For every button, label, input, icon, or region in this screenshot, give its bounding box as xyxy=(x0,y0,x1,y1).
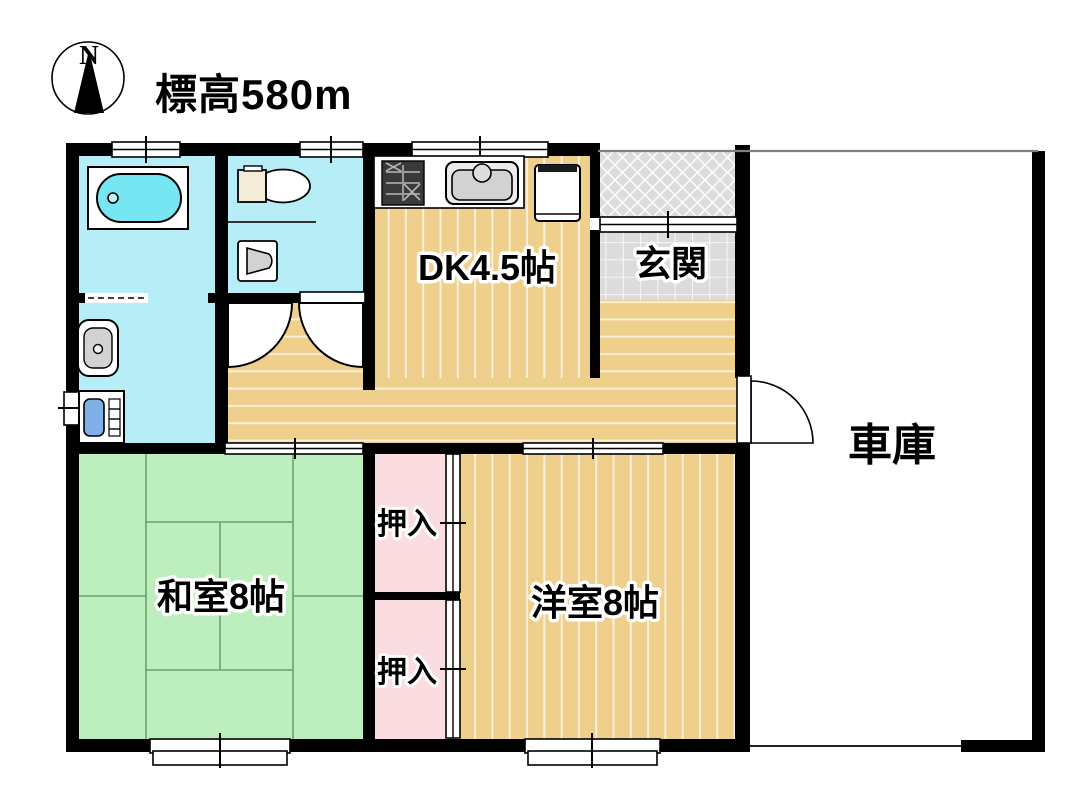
closet-upper-label: 押入 xyxy=(377,508,437,541)
genkan-label: 玄関 xyxy=(635,243,707,284)
garage-label: 車庫 xyxy=(848,421,936,470)
bath-folding-door xyxy=(85,293,148,303)
washitsu-label: 和室8帖 xyxy=(157,576,285,617)
elevation-label: 標高580m xyxy=(155,71,352,118)
kitchen-sink-icon xyxy=(446,162,518,204)
closet-lower-label: 押入 xyxy=(377,656,437,689)
hall-band-stripes xyxy=(228,378,737,448)
washing-machine-icon xyxy=(79,391,124,443)
porch-hatch xyxy=(598,152,735,218)
yoshitsu-label: 洋室8帖 xyxy=(531,582,659,623)
stove-icon xyxy=(382,161,424,205)
bathtub-icon xyxy=(88,167,188,229)
refrigerator-icon xyxy=(535,165,580,221)
dk-label: DK4.5帖 xyxy=(418,247,556,288)
toilet-doorway-header xyxy=(300,292,365,303)
washitsu-bottom-window xyxy=(150,733,290,768)
hand-basin-icon xyxy=(238,241,277,281)
washroom-sink-icon xyxy=(78,320,118,376)
compass: N xyxy=(52,40,124,114)
floorplan-canvas: N 標高580m DK4.5帖 玄関 車庫 和室8帖 洋室8帖 押入 押入 xyxy=(0,0,1091,793)
yoshitsu-bottom-window xyxy=(525,733,660,768)
garage-door xyxy=(737,376,813,443)
floorplan: N 標高580m DK4.5帖 玄関 車庫 和室8帖 洋室8帖 押入 押入 xyxy=(0,0,1091,793)
kitchen-counter xyxy=(374,156,524,208)
